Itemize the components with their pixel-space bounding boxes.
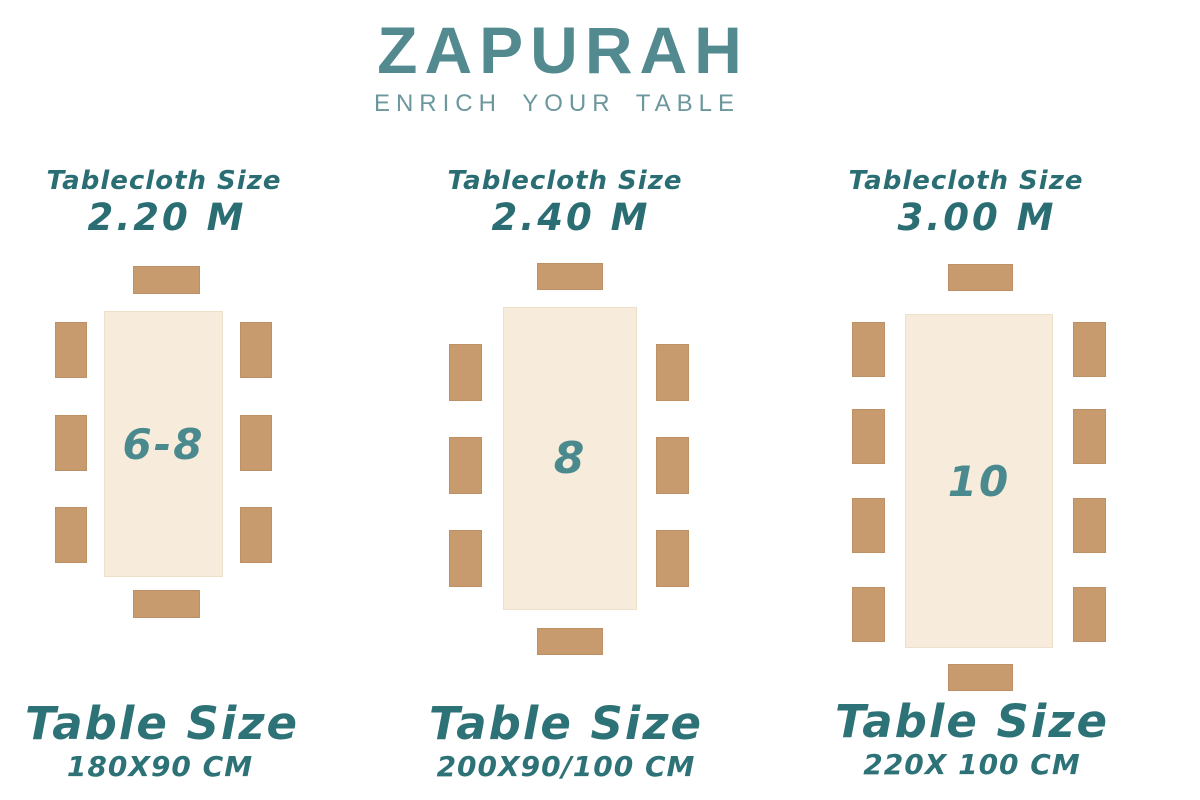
tablecloth-size-value-2: 2.40 M <box>492 199 651 238</box>
chair-left-3-1 <box>852 322 885 377</box>
chair-left-1-2 <box>55 415 87 471</box>
table-size-label-1: Table Size <box>25 700 299 747</box>
table-dimensions-3: 220X 100 CM <box>863 750 1080 779</box>
table-dimensions-2: 200X90/100 CM <box>437 752 696 781</box>
chair-foot-2 <box>537 628 603 655</box>
brand-tagline: ENRICH YOUR TABLE <box>374 91 740 116</box>
dining-table-2: 8 <box>503 307 637 610</box>
chair-left-2-3 <box>449 530 482 587</box>
chair-head-3 <box>948 264 1013 291</box>
brand-logo: ZAPURAH <box>377 16 749 85</box>
dining-table-3: 10 <box>905 314 1053 648</box>
chair-left-3-2 <box>852 409 885 464</box>
chair-right-3-2 <box>1073 409 1106 464</box>
chair-left-1-3 <box>55 507 87 563</box>
chair-right-1-3 <box>240 507 272 563</box>
chair-right-2-3 <box>656 530 689 587</box>
chair-right-3-1 <box>1073 322 1106 377</box>
chair-right-3-4 <box>1073 587 1106 642</box>
chair-left-2-2 <box>449 437 482 494</box>
tablecloth-size-label-2: Tablecloth Size <box>448 168 683 195</box>
chair-right-1-1 <box>240 322 272 378</box>
table-size-label-3: Table Size <box>835 698 1109 745</box>
chair-head-1 <box>133 266 200 294</box>
chair-foot-1 <box>133 590 200 618</box>
chair-right-2-2 <box>656 437 689 494</box>
chair-right-3-3 <box>1073 498 1106 553</box>
tablecloth-size-value-1: 2.20 M <box>88 199 247 238</box>
chair-left-1-1 <box>55 322 87 378</box>
tablecloth-size-guide-poster: ZAPURAH ENRICH YOUR TABLE Tablecloth Siz… <box>0 0 1200 800</box>
seat-count-2: 8 <box>554 433 587 484</box>
tablecloth-size-label-1: Tablecloth Size <box>47 168 282 195</box>
chair-foot-3 <box>948 664 1013 691</box>
seat-count-1: 6-8 <box>123 420 205 469</box>
chair-left-2-1 <box>449 344 482 401</box>
table-size-label-2: Table Size <box>429 700 703 747</box>
table-dimensions-1: 180X90 CM <box>67 752 253 781</box>
chair-right-2-1 <box>656 344 689 401</box>
chair-right-1-2 <box>240 415 272 471</box>
tablecloth-size-label-3: Tablecloth Size <box>849 168 1084 195</box>
seat-count-3: 10 <box>948 457 1010 506</box>
tablecloth-size-value-3: 3.00 M <box>898 199 1057 238</box>
chair-left-3-4 <box>852 587 885 642</box>
dining-table-1: 6-8 <box>104 311 223 577</box>
chair-head-2 <box>537 263 603 290</box>
chair-left-3-3 <box>852 498 885 553</box>
